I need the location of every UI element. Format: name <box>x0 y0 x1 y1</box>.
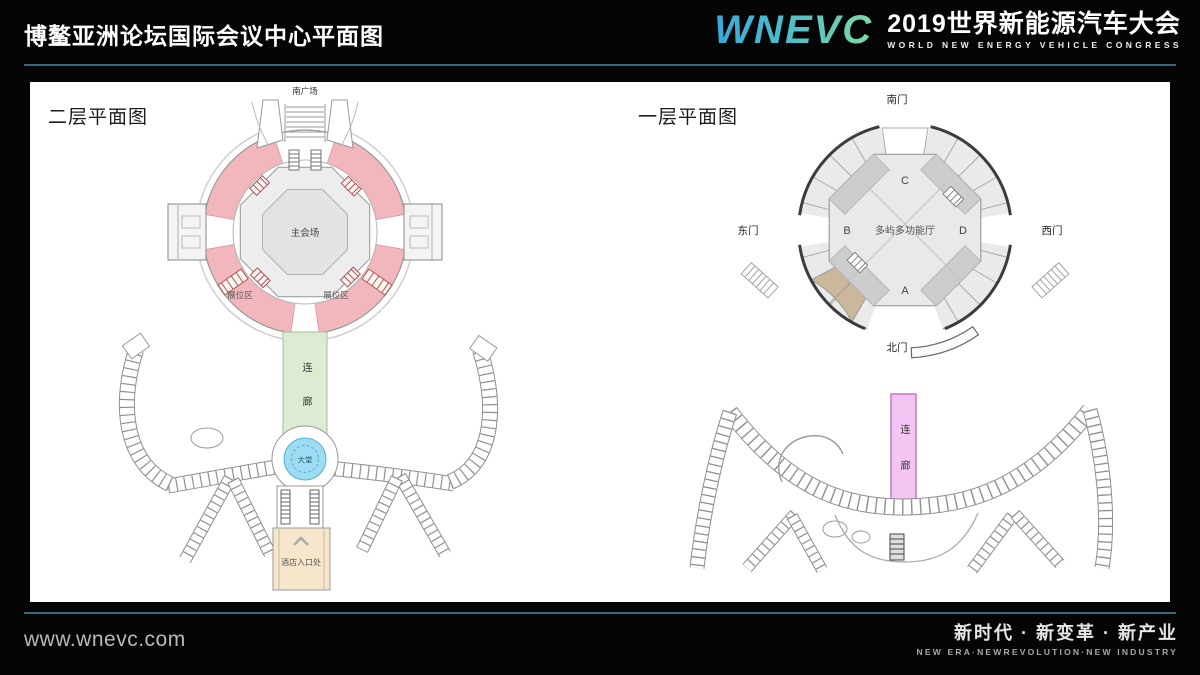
logo-block: WNEVC 2019世界新能源汽车大会 WORLD NEW ENERGY VEH… <box>714 8 1182 53</box>
footer-divider <box>24 612 1176 614</box>
wnevc-logo: WNEVC <box>714 8 873 53</box>
floor2-south-plaza-stair <box>252 100 358 148</box>
website-url: www.wnevc.com <box>24 628 186 652</box>
floor2-plan-drawing: 主会场 <box>30 82 590 602</box>
congress-title-en: WORLD NEW ENERGY VEHICLE CONGRESS <box>887 41 1182 50</box>
floor2-west-tower <box>168 204 206 260</box>
footer: www.wnevc.com 新时代 · 新变革 · 新产业 NEW ERA·NE… <box>0 602 1200 675</box>
floor2-east-tower <box>404 204 442 260</box>
floor1-hall-label: 多屿多功能厅 <box>875 224 935 237</box>
floorplan-canvas: 二层平面图 一层平面图 <box>30 82 1170 602</box>
floor2-hotel-entrance-label: 酒店入口处 <box>281 557 321 567</box>
floor2-corridor-label: 连廊 <box>298 362 313 430</box>
page-title: 博鳌亚洲论坛国际会议中心平面图 <box>24 17 384 51</box>
slogan-en: NEW ERA·NEWREVOLUTION·NEW INDUSTRY <box>917 648 1178 657</box>
floor1-corridor-label: 连廊 <box>896 424 911 496</box>
floor2-lobby-label: 大堂 <box>298 455 313 465</box>
floor1-east-gate-label: 东门 <box>738 224 759 237</box>
floor2-main-hall-label: 主会场 <box>291 227 320 239</box>
congress-title: 2019世界新能源汽车大会 WORLD NEW ENERGY VEHICLE C… <box>887 11 1182 49</box>
floor1-zone-b-label: B <box>843 225 850 237</box>
slogan-cn: 新时代 · 新变革 · 新产业 <box>917 624 1178 644</box>
slogan-block: 新时代 · 新变革 · 新产业 NEW ERA·NEWREVOLUTION·NE… <box>917 624 1178 657</box>
floor1-zone-c-label: C <box>901 175 909 187</box>
floor1-north-gate-label: 北门 <box>887 341 908 354</box>
floor2-booth-label-left: 展位区 <box>227 290 253 300</box>
floor1-south-gate-label: 南门 <box>887 93 908 106</box>
floor1-zone-d-label: D <box>959 225 967 237</box>
floor1-west-gate-label: 西门 <box>1042 224 1063 237</box>
floor2-booth-label-right: 展位区 <box>323 290 349 300</box>
congress-title-cn: 2019世界新能源汽车大会 <box>887 11 1181 37</box>
floor1-zone-a-label: A <box>901 285 909 297</box>
floor2-south-plaza-label: 南广场 <box>292 86 318 96</box>
floor1-plan-drawing: C B D A 多屿多功能厅 南门 东门 西门 北门 <box>610 82 1170 602</box>
stair-icon <box>890 534 904 560</box>
header: 博鳌亚洲论坛国际会议中心平面图 WNEVC 2019世界新能源汽车大会 WORL… <box>0 0 1200 66</box>
header-divider <box>24 64 1176 66</box>
slide: 博鳌亚洲论坛国际会议中心平面图 WNEVC 2019世界新能源汽车大会 WORL… <box>0 0 1200 675</box>
